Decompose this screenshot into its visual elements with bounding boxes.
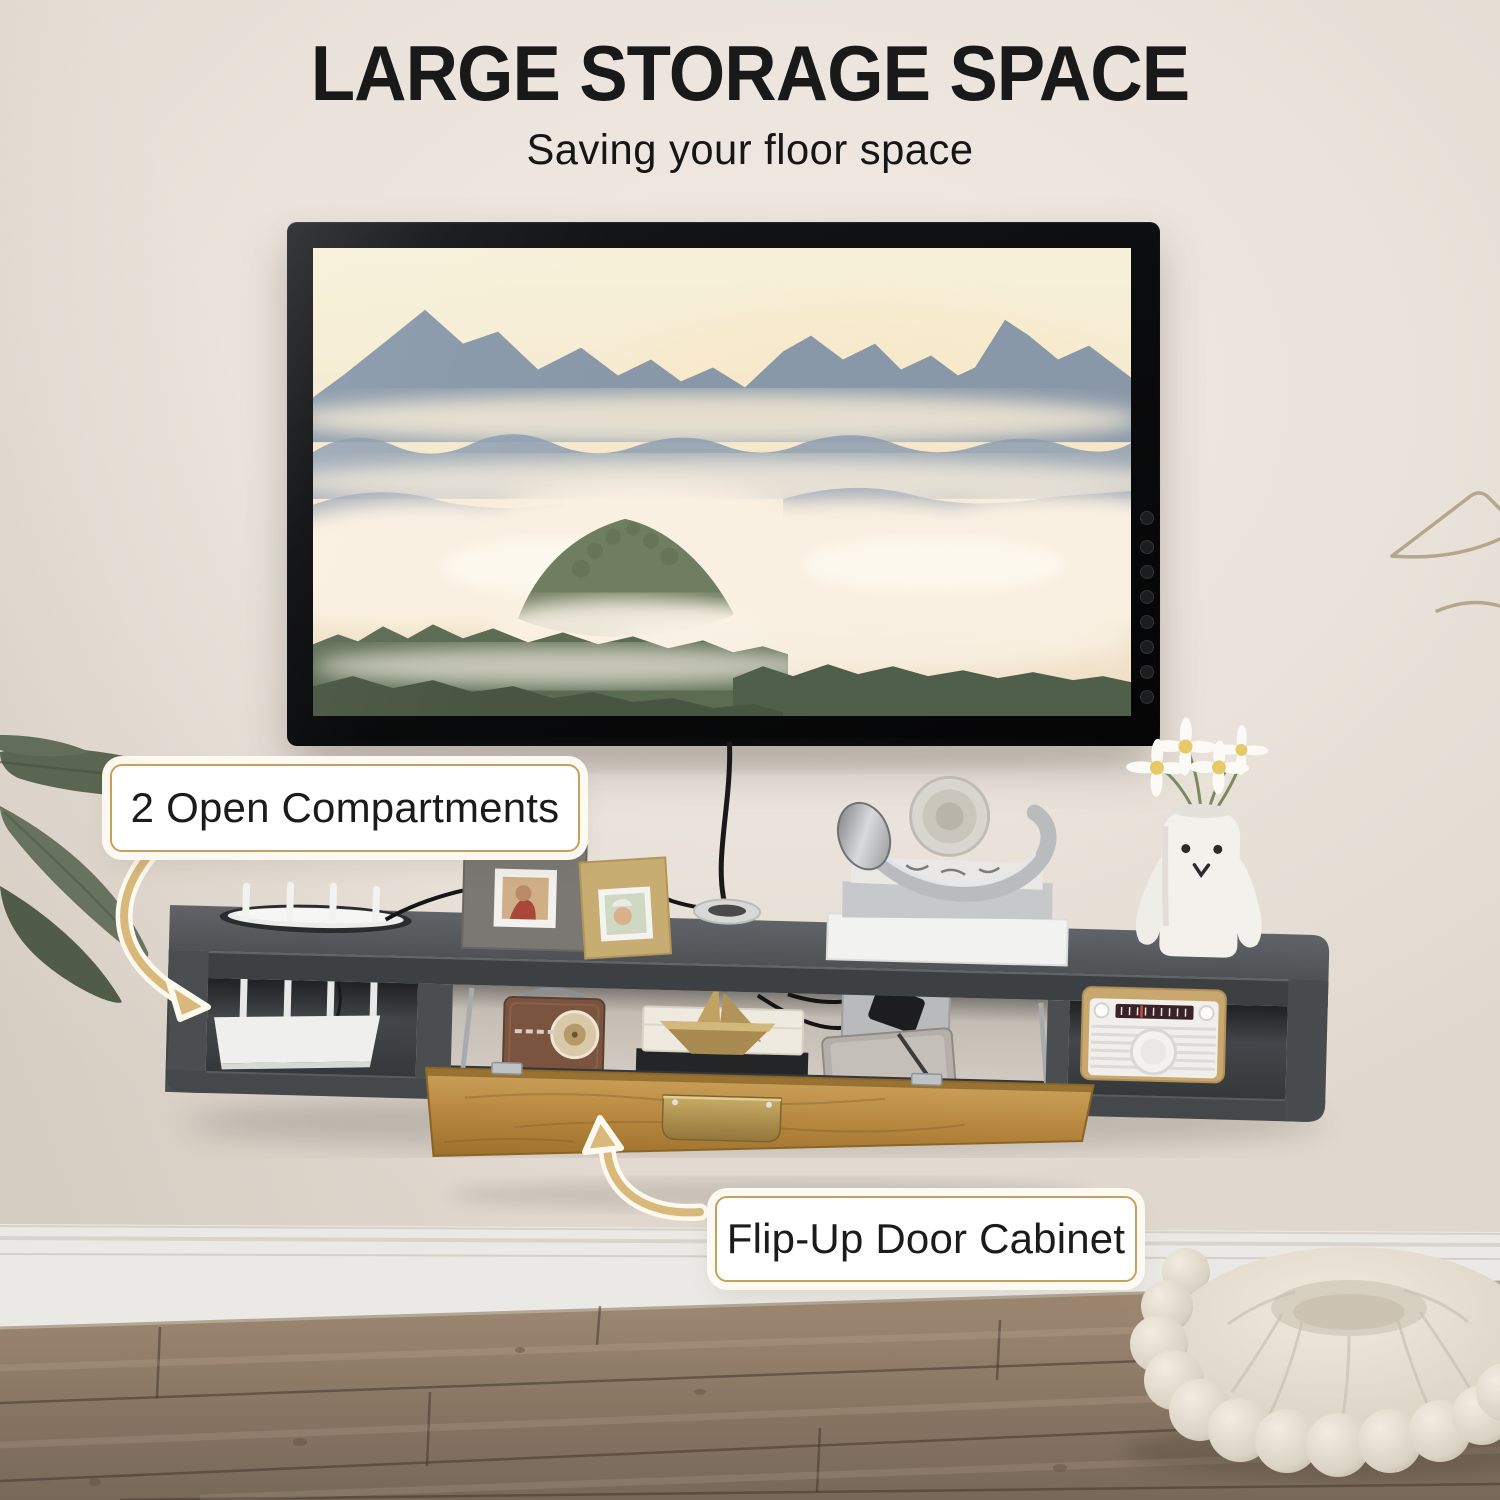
cabinet-shelf-lip xyxy=(451,1065,1046,1095)
vase-arm-left xyxy=(1135,855,1164,945)
door-hinge-brackets xyxy=(492,1062,942,1085)
cable-grommet xyxy=(694,899,761,925)
speaker-radio xyxy=(1081,987,1226,1083)
wire-art-decor xyxy=(1392,493,1500,611)
callout-open-compartments-label: 2 Open Compartments xyxy=(131,784,560,832)
open-compartment-left xyxy=(206,978,418,1078)
console-bottom-slab xyxy=(165,1070,1325,1122)
callout-flip-up-door-label: Flip-Up Door Cabinet xyxy=(727,1215,1126,1263)
console-right-cap xyxy=(1285,979,1329,1122)
power-outlet-panel xyxy=(815,971,951,1050)
arrow-flip-door xyxy=(585,1118,700,1212)
bunny-vase xyxy=(1121,716,1269,959)
router xyxy=(213,978,381,1073)
page-subtitle: Saving your floor space xyxy=(23,126,1478,175)
pen xyxy=(899,1032,930,1080)
page-title: LARGE STORAGE SPACE xyxy=(53,34,1448,114)
cable-cutout-oval xyxy=(219,902,412,935)
book-riser xyxy=(636,1048,809,1086)
floor-grain xyxy=(0,1318,1500,1498)
pouf-balls xyxy=(1130,1280,1500,1477)
pouf-creases xyxy=(1228,1290,1472,1428)
console-left-cap xyxy=(165,950,209,1093)
arrow-open-compartments xyxy=(124,854,208,1019)
vintage-radio xyxy=(503,989,605,1077)
flip-up-door xyxy=(424,1061,1094,1173)
door-handle xyxy=(662,1095,781,1142)
wall-mounted-tv xyxy=(287,222,1160,746)
router-cable xyxy=(335,981,341,1024)
product-showcase: LARGE STORAGE SPACE Saving your floor sp… xyxy=(0,0,1500,1500)
wood-floor xyxy=(0,1282,1500,1500)
console-divider-right xyxy=(1045,1000,1069,1096)
top-cable xyxy=(386,875,725,928)
headphones xyxy=(827,774,1050,896)
tv-power-led xyxy=(1140,511,1154,525)
pouf-cushion xyxy=(1125,1247,1500,1478)
console-top-edge xyxy=(168,950,1328,1007)
photo-frame-gold xyxy=(579,857,671,958)
header: LARGE STORAGE SPACE Saving your floor sp… xyxy=(0,34,1500,175)
vase-arm-right xyxy=(1235,858,1264,948)
door-stay-hinges xyxy=(463,988,1049,1085)
tv-power-cable xyxy=(720,741,730,905)
console-shadow xyxy=(185,1092,1325,1152)
console-top-surface xyxy=(169,905,1330,980)
cabinet-interior xyxy=(451,984,1048,1095)
daisy xyxy=(1125,738,1188,798)
floor-plank-seams xyxy=(0,1306,1500,1500)
vase-face-nose xyxy=(1194,865,1208,875)
cabinet-cables xyxy=(757,985,883,1029)
open-compartment-right xyxy=(1067,1001,1287,1102)
magazine-stack xyxy=(827,856,1070,965)
photo-frame-gray xyxy=(462,842,587,951)
radio-tuning-window xyxy=(1115,1004,1193,1020)
tablet-sleeve xyxy=(822,1028,957,1104)
callout-flip-up-door: Flip-Up Door Cabinet xyxy=(715,1196,1137,1282)
callout-open-compartments: 2 Open Compartments xyxy=(110,764,580,852)
gold-paper-boat xyxy=(659,981,776,1056)
router-antennas xyxy=(246,884,377,921)
mountain-mist-wallpaper xyxy=(313,248,1131,716)
tv-screen xyxy=(313,248,1131,716)
floor-knots xyxy=(89,1329,1245,1486)
white-book-stack xyxy=(642,1006,803,1054)
tv-control-buttons xyxy=(1140,511,1154,704)
console-divider-left xyxy=(416,984,453,1080)
